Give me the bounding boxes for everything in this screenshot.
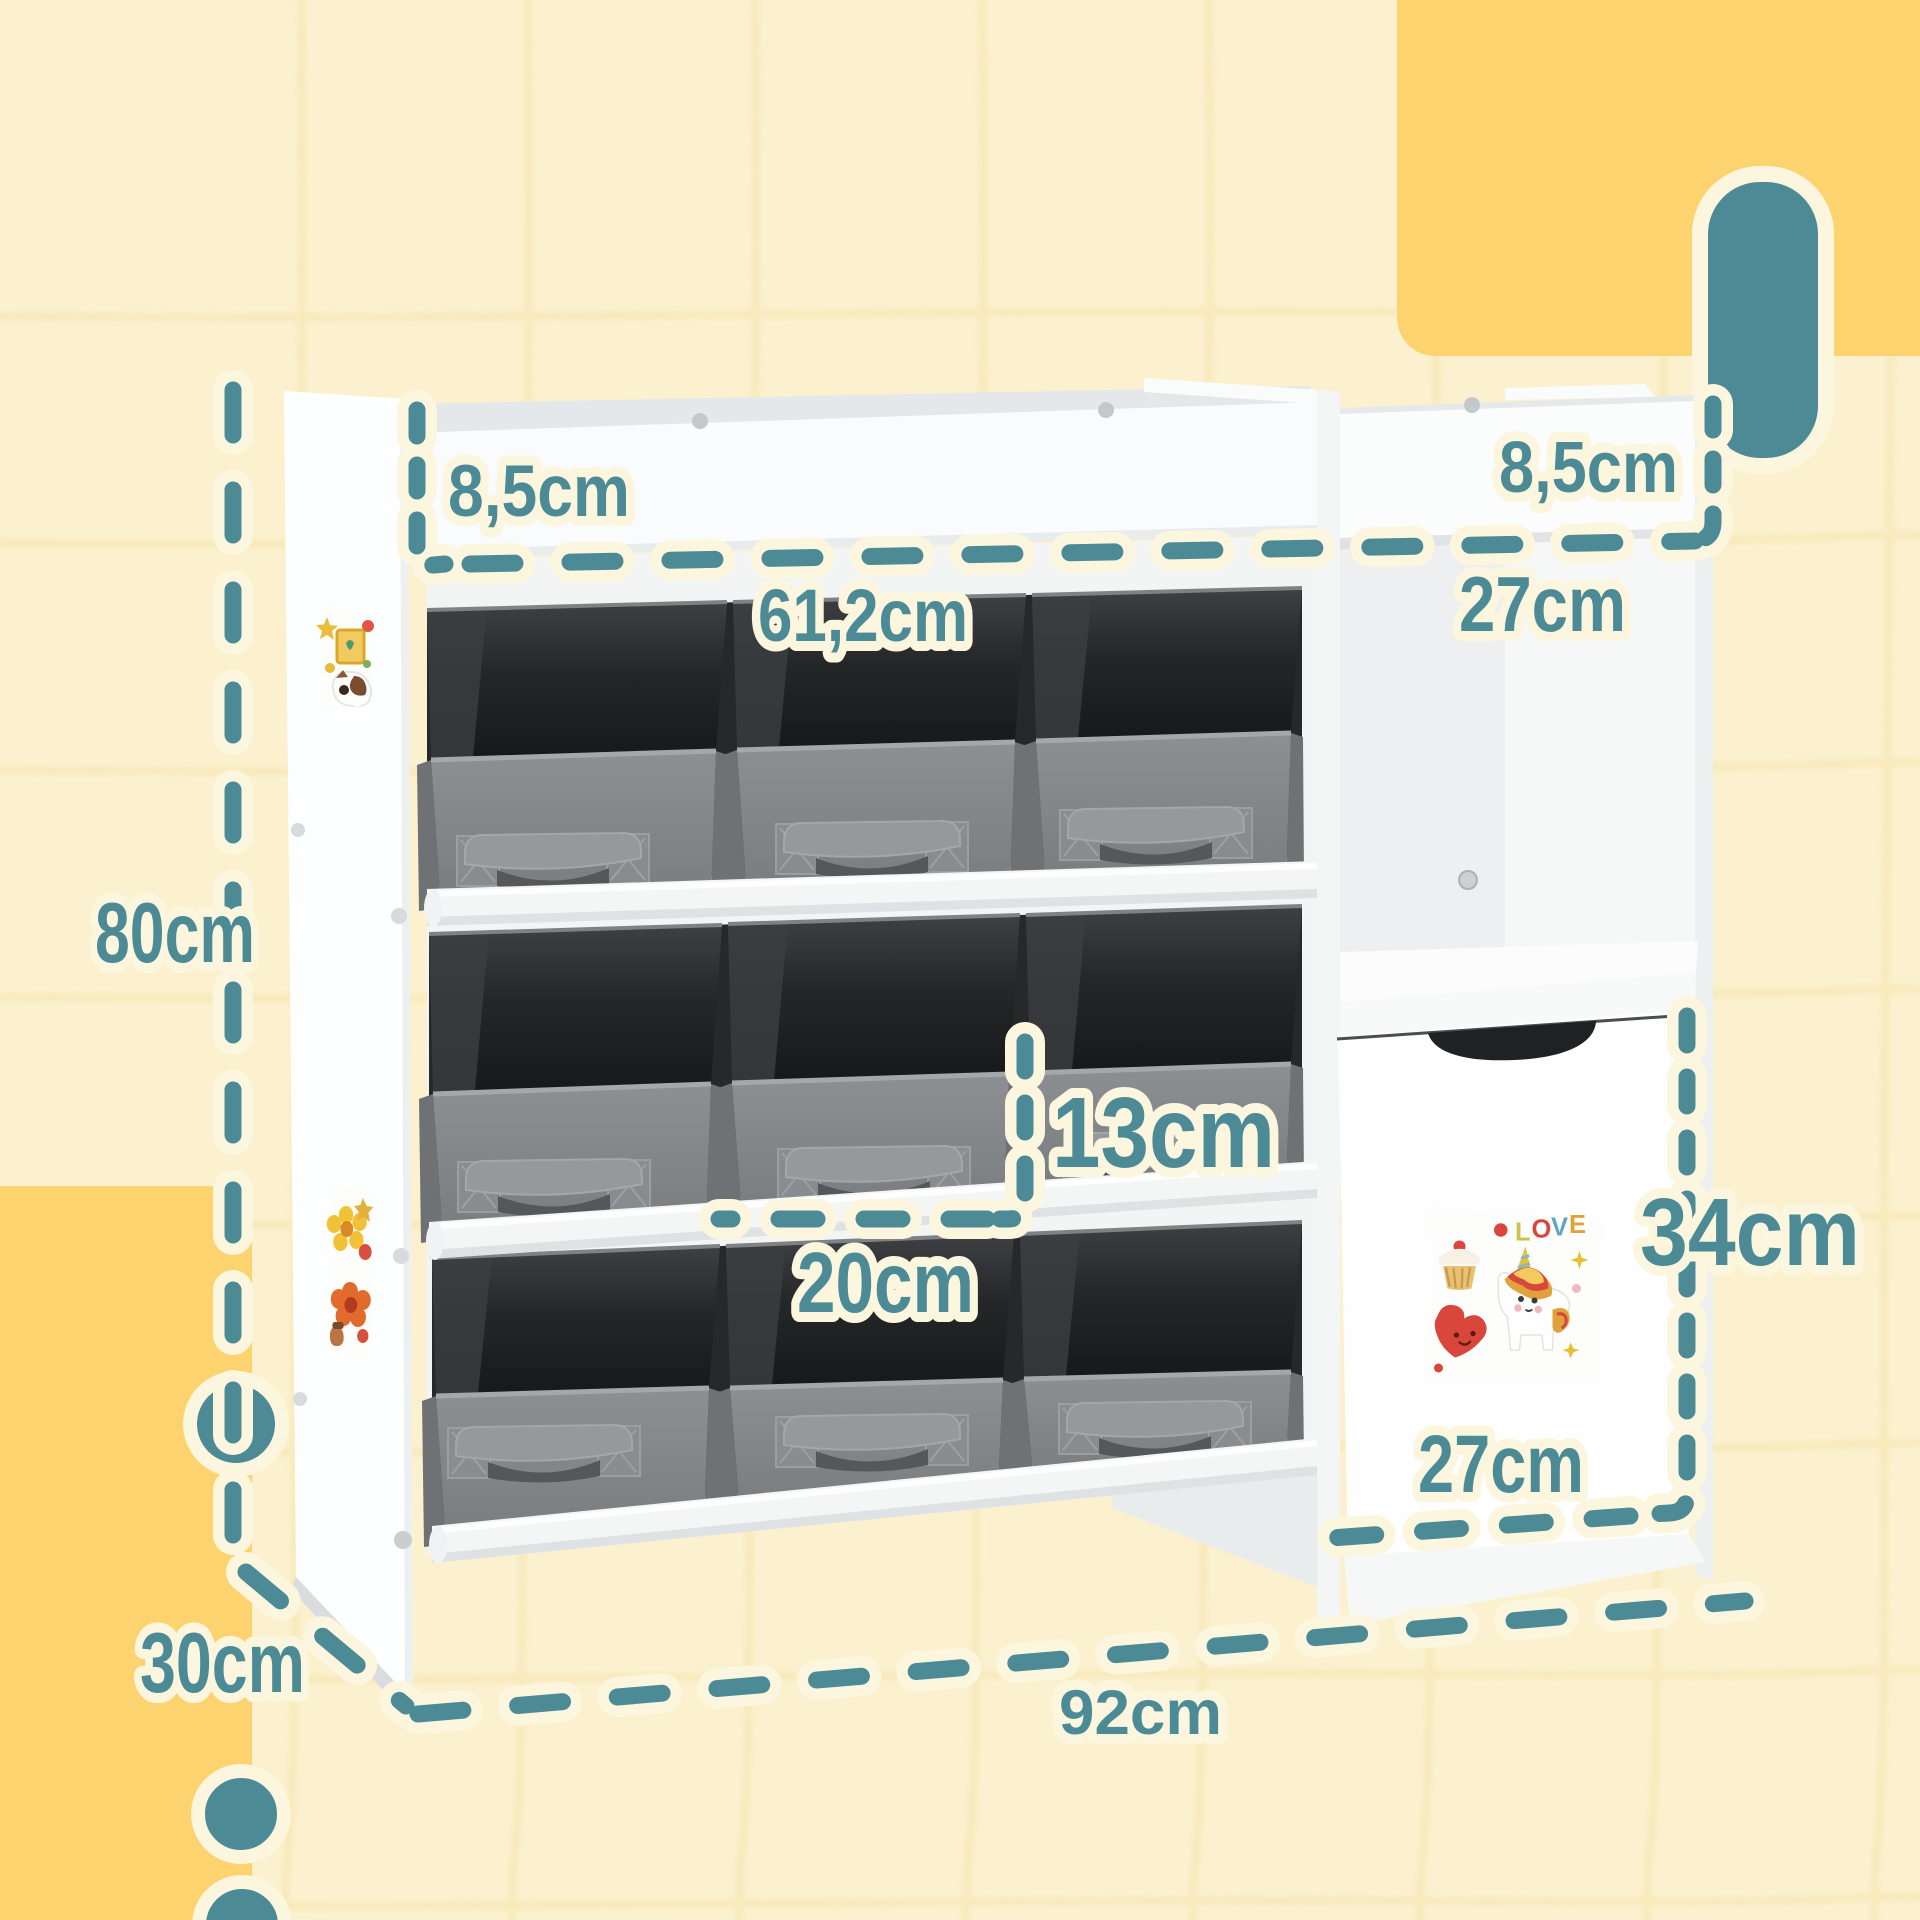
svg-text:E: E [1569, 1211, 1586, 1239]
svg-text:80cm: 80cm [95, 886, 255, 981]
svg-text:13cm: 13cm [1052, 1077, 1275, 1189]
svg-text:20cm: 20cm [797, 1236, 974, 1331]
svg-text:8,5cm: 8,5cm [448, 451, 630, 532]
svg-text:V: V [1551, 1213, 1568, 1241]
svg-text:L: L [1515, 1219, 1531, 1247]
svg-text:30cm: 30cm [140, 1616, 305, 1711]
svg-text:O: O [1532, 1216, 1552, 1244]
svg-text:34cm: 34cm [1640, 1179, 1860, 1286]
svg-text:92cm: 92cm [1059, 1678, 1222, 1748]
svg-text:27cm: 27cm [1459, 560, 1626, 648]
svg-text:27cm: 27cm [1418, 1419, 1584, 1510]
svg-text:8,5cm: 8,5cm [1499, 428, 1678, 508]
svg-text:61,2cm: 61,2cm [758, 574, 968, 657]
